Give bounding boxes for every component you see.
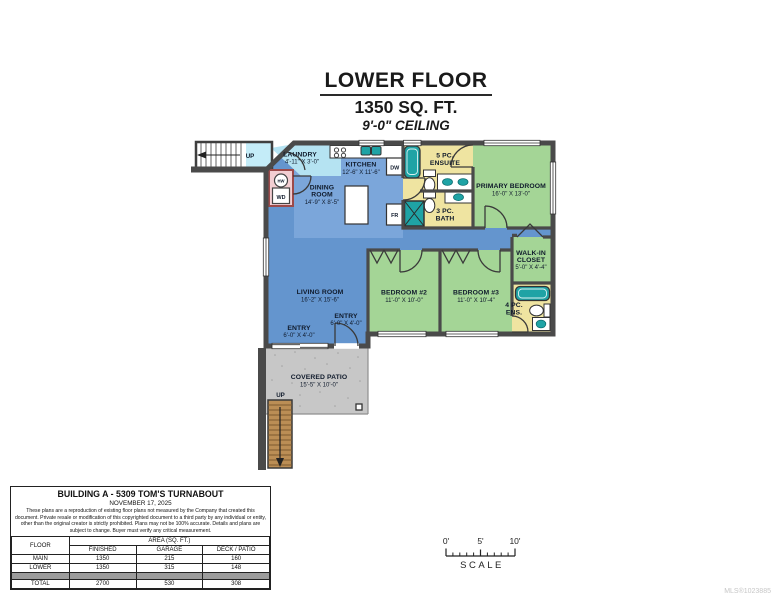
building-title: BUILDING A - 5309 TOM'S TURNABOUT xyxy=(11,489,270,499)
label-bedroom2: BEDROOM #2 xyxy=(381,290,427,297)
label-ensuite: 5 PC. xyxy=(436,153,454,160)
page-title: LOWER FLOOR xyxy=(320,69,493,96)
ceiling-subtitle: 9'-0" CEILING xyxy=(298,118,514,133)
table-row: LOWER 1350 315 148 xyxy=(12,564,270,573)
svg-text:6'-0" X 4'-0": 6'-0" X 4'-0" xyxy=(283,333,314,339)
floorplan-page: LOWER FLOOR 1350 SQ. FT. 9'-0" CEILING xyxy=(0,0,776,600)
label-bedroom3: BEDROOM #3 xyxy=(453,290,499,297)
bath-toilet xyxy=(424,192,436,198)
disclaimer-text: These plans are a reproduction of existi… xyxy=(11,507,270,536)
label-laundry: LAUNDRY xyxy=(283,152,317,159)
scale-tick-5: 5' xyxy=(477,536,484,546)
ens4-toilet xyxy=(544,304,550,317)
scale-tick-0: 0' xyxy=(443,536,450,546)
scale-bar: 0' 5' 10' SCALE xyxy=(435,534,530,574)
col-header-finished: FINISHED xyxy=(69,546,136,555)
label-walkin: WALK-IN xyxy=(516,250,546,257)
ensuite-toilet xyxy=(424,170,436,177)
col-header-garage: GARAGE xyxy=(136,546,203,555)
front-door-opening xyxy=(334,343,359,349)
svg-text:16'-0" X 13'-0": 16'-0" X 13'-0" xyxy=(492,192,530,198)
floorplan-drawing: LAUNDRY 4'-11" X 3'-0" KITCHEN 12'-6" X … xyxy=(190,135,562,480)
title-block: LOWER FLOOR 1350 SQ. FT. 9'-0" CEILING xyxy=(298,69,514,133)
svg-text:CLOSET: CLOSET xyxy=(517,257,546,264)
label-dw: DW xyxy=(390,165,400,171)
col-header-floor: FLOOR xyxy=(12,537,70,555)
table-separator-row xyxy=(12,573,270,580)
label-entry-inner: ENTRY xyxy=(334,313,358,320)
label-primary: PRIMARY BEDROOM xyxy=(476,183,546,190)
label-up-bottom: UP xyxy=(276,392,285,399)
col-header-deck: DECK / PATIO xyxy=(203,546,270,555)
area-table: FLOOR AREA (SQ. FT.) FINISHED GARAGE DEC… xyxy=(11,536,270,589)
label-entry-outer: ENTRY xyxy=(287,325,311,332)
kitchen-island xyxy=(345,186,368,224)
svg-text:BATH: BATH xyxy=(436,216,455,223)
patio-slider-door xyxy=(272,343,328,348)
label-ens4: 4 PC. xyxy=(505,302,523,309)
table-row-total: TOTAL 2700 530 308 xyxy=(12,580,270,589)
svg-text:14'-9" X 8'-5": 14'-9" X 8'-5" xyxy=(305,200,340,206)
svg-text:11'-0" X 10'-0": 11'-0" X 10'-0" xyxy=(385,298,422,304)
svg-text:ENS.: ENS. xyxy=(506,310,522,317)
label-wd: WD xyxy=(277,195,286,201)
svg-text:5'-0" X 4'-4": 5'-0" X 4'-4" xyxy=(515,265,546,271)
label-hw: HW xyxy=(278,178,285,183)
label-living: LIVING ROOM xyxy=(297,289,344,296)
label-kitchen: KITCHEN xyxy=(346,162,377,169)
label-fr: FR xyxy=(391,213,398,219)
svg-text:ENSUITE: ENSUITE xyxy=(430,160,461,167)
svg-text:4'-11" X 3'-0": 4'-11" X 3'-0" xyxy=(285,160,319,166)
area-subtitle: 1350 SQ. FT. xyxy=(298,97,514,118)
svg-text:12'-6" X 11'-6": 12'-6" X 11'-6" xyxy=(342,170,379,176)
svg-text:6'-0" X 4'-0": 6'-0" X 4'-0" xyxy=(330,321,361,327)
patio-post xyxy=(356,404,362,410)
bath-shower xyxy=(405,201,425,226)
label-bath: 3 PC. xyxy=(436,208,454,215)
svg-text:15'-5" X 10'-0": 15'-5" X 10'-0" xyxy=(300,383,338,389)
mls-watermark: MLS®1023885 xyxy=(724,588,771,595)
svg-text:ROOM: ROOM xyxy=(311,192,333,199)
patio-side-wall xyxy=(258,348,266,470)
scale-label: SCALE xyxy=(460,560,504,571)
plan-date: NOVEMBER 17, 2025 xyxy=(11,500,270,507)
kitchen-sink-icon xyxy=(361,147,371,156)
patio-stairs xyxy=(268,400,292,468)
stair-lintel xyxy=(191,167,272,173)
label-patio: COVERED PATIO xyxy=(291,374,348,381)
scale-tick-10: 10' xyxy=(509,536,520,546)
col-header-area: AREA (SQ. FT.) xyxy=(69,537,269,546)
svg-text:11'-0" X 10'-4": 11'-0" X 10'-4" xyxy=(457,298,494,304)
upper-stairs xyxy=(191,142,272,173)
table-row: MAIN 1350 215 160 xyxy=(12,555,270,564)
info-box: BUILDING A - 5309 TOM'S TURNABOUT NOVEMB… xyxy=(10,486,271,590)
label-dining: DINING xyxy=(310,185,334,192)
label-up-top: UP xyxy=(246,153,255,160)
svg-text:16'-2" X 15'-6": 16'-2" X 15'-6" xyxy=(301,298,339,304)
